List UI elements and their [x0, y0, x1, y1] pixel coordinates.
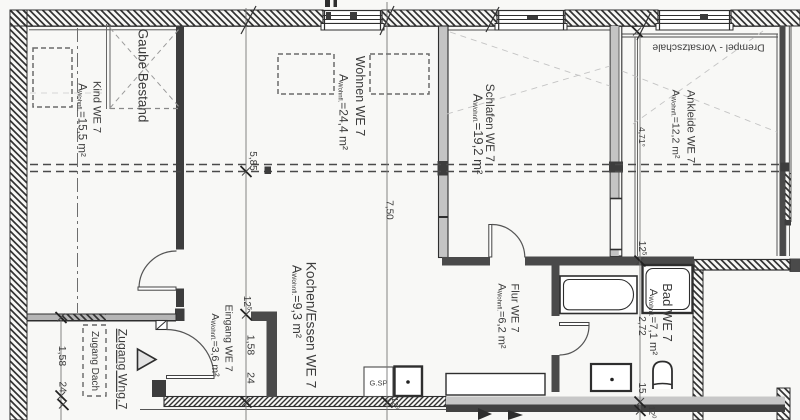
- svg-text:15: 15: [636, 382, 647, 394]
- svg-text:7,50: 7,50: [383, 200, 394, 220]
- svg-text:Drempel - Vorsatzschale: Drempel - Vorsatzschale: [652, 41, 764, 52]
- svg-text:Eingang WE 7: Eingang WE 7: [223, 304, 235, 371]
- svg-text:Gaube Bestand: Gaube Bestand: [135, 29, 150, 123]
- svg-text:2,72: 2,72: [636, 316, 647, 336]
- svg-text:Flur WE 7: Flur WE 7: [509, 284, 521, 333]
- svg-text:Wohnen WE 7: Wohnen WE 7: [353, 56, 367, 136]
- svg-text:Bad WE 7: Bad WE 7: [660, 283, 675, 342]
- svg-text:G.SP: G.SP: [370, 379, 388, 388]
- svg-text:4,71°: 4,71°: [637, 127, 647, 147]
- svg-text:24: 24: [56, 381, 67, 393]
- svg-text:Ankleide WE 7: Ankleide WE 7: [685, 90, 697, 163]
- svg-text:Zugang Dach: Zugang Dach: [89, 331, 100, 391]
- svg-text:5,85: 5,85: [247, 151, 258, 171]
- svg-text:24: 24: [245, 372, 257, 384]
- svg-text:Kind WE 7: Kind WE 7: [91, 81, 103, 133]
- svg-text:Kochen/Essen WE 7: Kochen/Essen WE 7: [303, 262, 318, 389]
- svg-text:Zugang Wng.7: Zugang Wng.7: [115, 329, 129, 410]
- svg-text:1,58: 1,58: [245, 335, 257, 356]
- svg-text:1,58: 1,58: [56, 346, 68, 367]
